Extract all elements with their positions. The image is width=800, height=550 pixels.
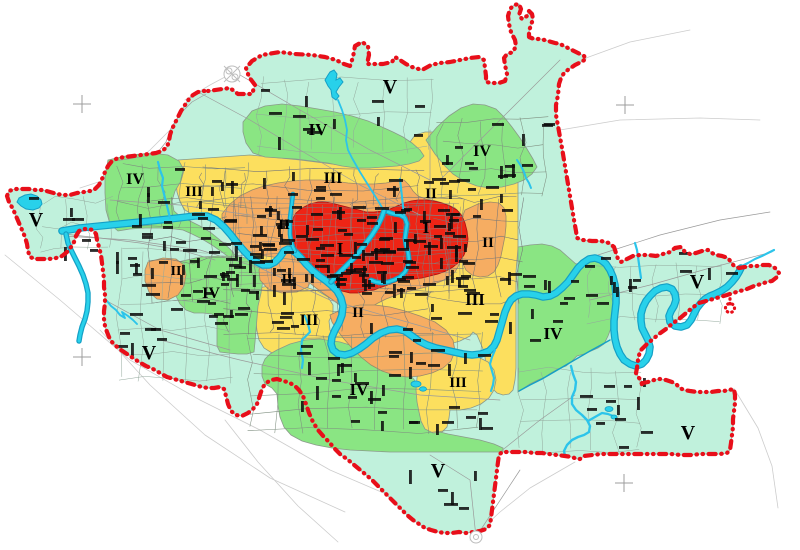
svg-text:III: III: [324, 170, 343, 187]
svg-text:III: III: [300, 312, 319, 329]
svg-text:V: V: [690, 271, 705, 293]
svg-text:II: II: [282, 272, 293, 287]
svg-text:IV: IV: [126, 171, 144, 188]
svg-text:IV: IV: [544, 324, 564, 343]
svg-text:V: V: [29, 209, 44, 231]
svg-text:V: V: [681, 422, 696, 444]
svg-text:IV: IV: [473, 143, 491, 160]
svg-text:III: III: [185, 184, 203, 200]
svg-text:II: II: [171, 264, 182, 279]
svg-text:II: II: [278, 217, 290, 233]
svg-text:IV: IV: [309, 120, 329, 139]
svg-text:V: V: [142, 342, 157, 364]
svg-text:III: III: [449, 375, 467, 391]
svg-text:I: I: [337, 239, 344, 258]
svg-text:II: II: [352, 305, 364, 321]
svg-text:I: I: [423, 218, 430, 237]
svg-text:III: III: [465, 290, 485, 309]
svg-text:IV: IV: [202, 285, 220, 302]
svg-text:IV: IV: [350, 380, 370, 399]
svg-text:II: II: [425, 186, 437, 202]
svg-text:II: II: [482, 235, 494, 251]
svg-text:V: V: [383, 76, 398, 98]
svg-text:V: V: [431, 460, 446, 482]
